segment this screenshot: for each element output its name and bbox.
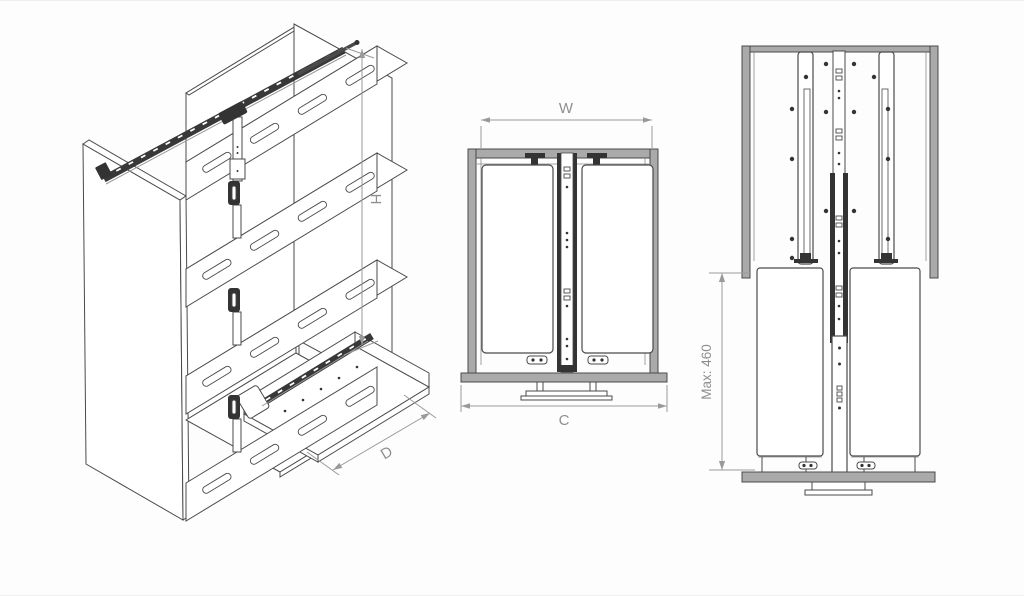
plan-center-rail	[557, 153, 577, 372]
plan-basket-right	[582, 165, 653, 353]
plan-basket-left	[482, 165, 553, 353]
drawing-page: H D W	[0, 0, 1024, 596]
front-view: Max: 460	[699, 46, 938, 495]
technical-drawing: H D W	[0, 1, 1024, 596]
plan-view: W	[461, 100, 667, 429]
height-dimension-label: H	[367, 194, 384, 205]
dim-inner-width: W	[481, 100, 652, 148]
plan-front-bracket	[521, 382, 612, 400]
inner-width-label: W	[559, 100, 574, 117]
base-plate	[742, 472, 935, 495]
max-drop-label: Max: 460	[699, 344, 714, 400]
front-basket-left	[757, 268, 823, 456]
depth-dimension-label: D	[378, 443, 396, 463]
front-basket-right	[850, 268, 920, 456]
isometric-view: H D	[83, 24, 436, 521]
rail-outer-tube	[830, 173, 835, 343]
dim-max-drop: Max: 460	[699, 273, 755, 470]
left-side-panel	[83, 144, 183, 520]
lower-rail	[832, 336, 847, 473]
front-center-rail	[830, 51, 848, 343]
overall-width-label: C	[559, 412, 570, 429]
